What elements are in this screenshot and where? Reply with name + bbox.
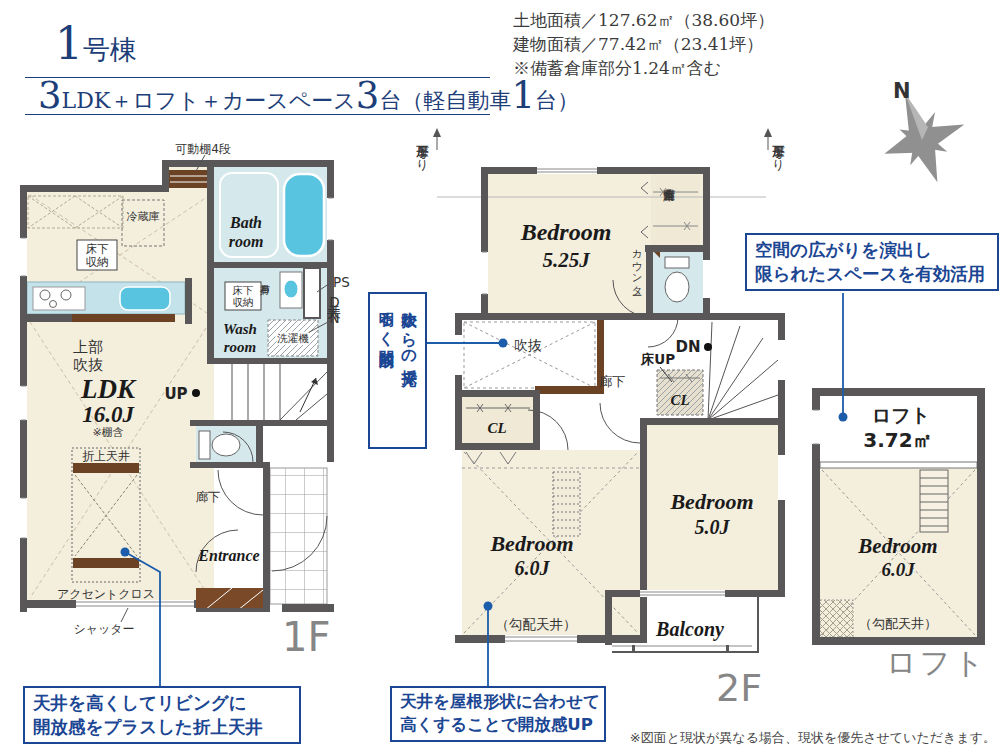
windows-loft: [812, 410, 820, 444]
plan-summary: 3LDK＋ロフト＋カースペース3台（軽自動車1台）: [38, 74, 579, 117]
fridge-label: 冷蔵庫: [127, 210, 160, 223]
wash-underfloor-2: 収納: [233, 296, 254, 308]
upper-void-1: 上部: [73, 338, 103, 356]
floor-up-label: 床UP: [640, 351, 675, 367]
svg-text:床下: 床下: [86, 242, 110, 256]
hallway-2f-label: 廊下: [599, 374, 625, 389]
bath-label-2: room: [229, 233, 264, 250]
loft-hatch-corner: [820, 600, 853, 637]
stairs-1f: [214, 364, 327, 420]
ps-label: PS: [333, 274, 350, 290]
loft-label: ロフト: [886, 643, 987, 684]
wash-underfloor-1: 床下: [233, 284, 254, 296]
loft-bedroom-size: 6.0J: [881, 559, 915, 580]
entrance-label: Entrance: [197, 547, 259, 564]
ps-shaft: [304, 268, 320, 318]
compass-north-label: N: [893, 79, 911, 103]
bedroom2-size: 6.0J: [515, 557, 551, 579]
void-label: 吹抜: [514, 337, 542, 353]
washstand-icon: [280, 272, 302, 308]
loft-bedroom-label: Bedroom: [857, 534, 937, 558]
counter-label: カウンター: [632, 242, 643, 290]
callout-void-light: 吹抜からの採光で 明るく開放的に: [368, 292, 427, 449]
shutter-label: シャッター: [73, 622, 134, 636]
bath-label-1: Bath: [229, 214, 262, 231]
loft-ladder: [920, 470, 948, 532]
porch-grid: [270, 468, 327, 604]
area-info: 土地面積／127.62㎡（38.60坪） 建物面積／77.42㎡（23.41坪）…: [513, 8, 774, 80]
moya-label-left: 母屋下がり: [416, 136, 429, 165]
entrance-step: [196, 588, 263, 610]
bedroom3-size: 5.0J: [695, 516, 731, 538]
moya-label-right: 母屋下がり: [772, 136, 785, 165]
stove-icon: [33, 287, 85, 310]
balcony-label: Balcony: [655, 618, 724, 641]
callout-space: 空間の広がりを演出し 限られたスペースを有効活用: [745, 233, 999, 291]
callout-coffered: 天井を高くしてリビングに 開放感をプラスした折上天井: [23, 686, 301, 744]
floorplan-page: 可動棚4段 冷蔵庫 床下 収納 Bath room 床下 収納 Wash roo…: [0, 0, 1000, 751]
loft-ladder-dashed: [553, 472, 580, 536]
floor1-label: 1F: [282, 614, 330, 660]
svg-text:収納: 収納: [86, 255, 109, 269]
disclaimer: ※図面と現状が異なる場合、現状を優先させていただきます。: [600, 729, 996, 747]
bedroom3-label: Bedroom: [669, 489, 753, 514]
floor2-plan: Bedroom 5.25J 吹抜 廊下 床UP DN CL CL Bedroom…: [433, 128, 785, 653]
loft-area: 3.72㎡: [863, 428, 932, 452]
storage-area-note: ※備蓄倉庫部分1.24㎡含む: [513, 56, 774, 80]
shelf-included: ※棚含: [92, 426, 123, 439]
sink-icon: [120, 287, 170, 310]
loft-plan: ロフト 3.72㎡ Bedroom 6.0J （勾配天井）: [812, 388, 985, 645]
callout-roof: 天井を屋根形状に合わせて 高くすることで開放感UP: [390, 686, 606, 742]
ldk-size: 16.0J: [82, 402, 135, 427]
loft-divider: [820, 462, 977, 468]
up-dot: [192, 389, 200, 397]
up-label: UP: [164, 385, 187, 403]
loft-name: ロフト: [872, 404, 930, 426]
cl-hatched-label: CL: [670, 392, 689, 408]
land-area: 土地面積／127.62㎡（38.60坪）: [513, 8, 774, 32]
hallway-1f-label: 廊下: [196, 489, 221, 504]
building-suffix: 号棟: [83, 34, 137, 65]
counter-bar: [72, 314, 175, 322]
wash-label-1: Wash: [223, 321, 257, 337]
underfloor-box-kitchen: 床下 収納: [77, 240, 117, 270]
movable-shelf: [168, 170, 210, 188]
toilet-icon-2f: [665, 257, 689, 302]
building-area: 建物面積／77.42㎡（23.41坪）: [513, 32, 774, 56]
kitchen-counter: [27, 282, 185, 314]
storage-closet: [651, 175, 700, 247]
bathtub-icon: [284, 174, 324, 256]
compass-icon: N: [867, 78, 979, 196]
movable-shelf-label: 可動棚4段: [175, 142, 231, 156]
page-title: 1号棟: [55, 18, 137, 69]
dot-space: [839, 413, 848, 422]
bedroom1-size: 5.25J: [542, 248, 591, 272]
dn-label: DN: [675, 338, 700, 356]
ldk-label: LDK: [80, 374, 137, 404]
building-number: 1: [55, 18, 83, 69]
ceiling-dn-label: 天井DN: [327, 294, 341, 326]
dn-dot: [704, 343, 712, 351]
floor1-plan: 可動棚4段 冷蔵庫 床下 収納 Bath room 床下 収納 Wash roo…: [20, 142, 350, 636]
stairs-2f: [708, 322, 778, 420]
dot-coffered: [121, 548, 130, 557]
upper-void-2: 吹抜: [73, 356, 103, 374]
accent-label: アクセントクロス: [57, 587, 155, 601]
dot-void-light: [499, 339, 508, 348]
bedroom1-label: Bedroom: [520, 219, 612, 245]
cl-left-label: CL: [487, 420, 506, 436]
oriage-label: 折上天井: [82, 449, 130, 463]
bedroom2-slope: （勾配天井）: [496, 616, 577, 632]
bedroom2-label: Bedroom: [489, 531, 573, 556]
floor2-label: 2F: [716, 666, 762, 710]
washer-label: 洗濯機: [277, 332, 309, 344]
title-rule-bottom: [25, 114, 490, 115]
wash-label-2: room: [224, 339, 257, 355]
loft-slope: （勾配天井）: [859, 616, 937, 631]
dot-roof: [484, 602, 493, 611]
